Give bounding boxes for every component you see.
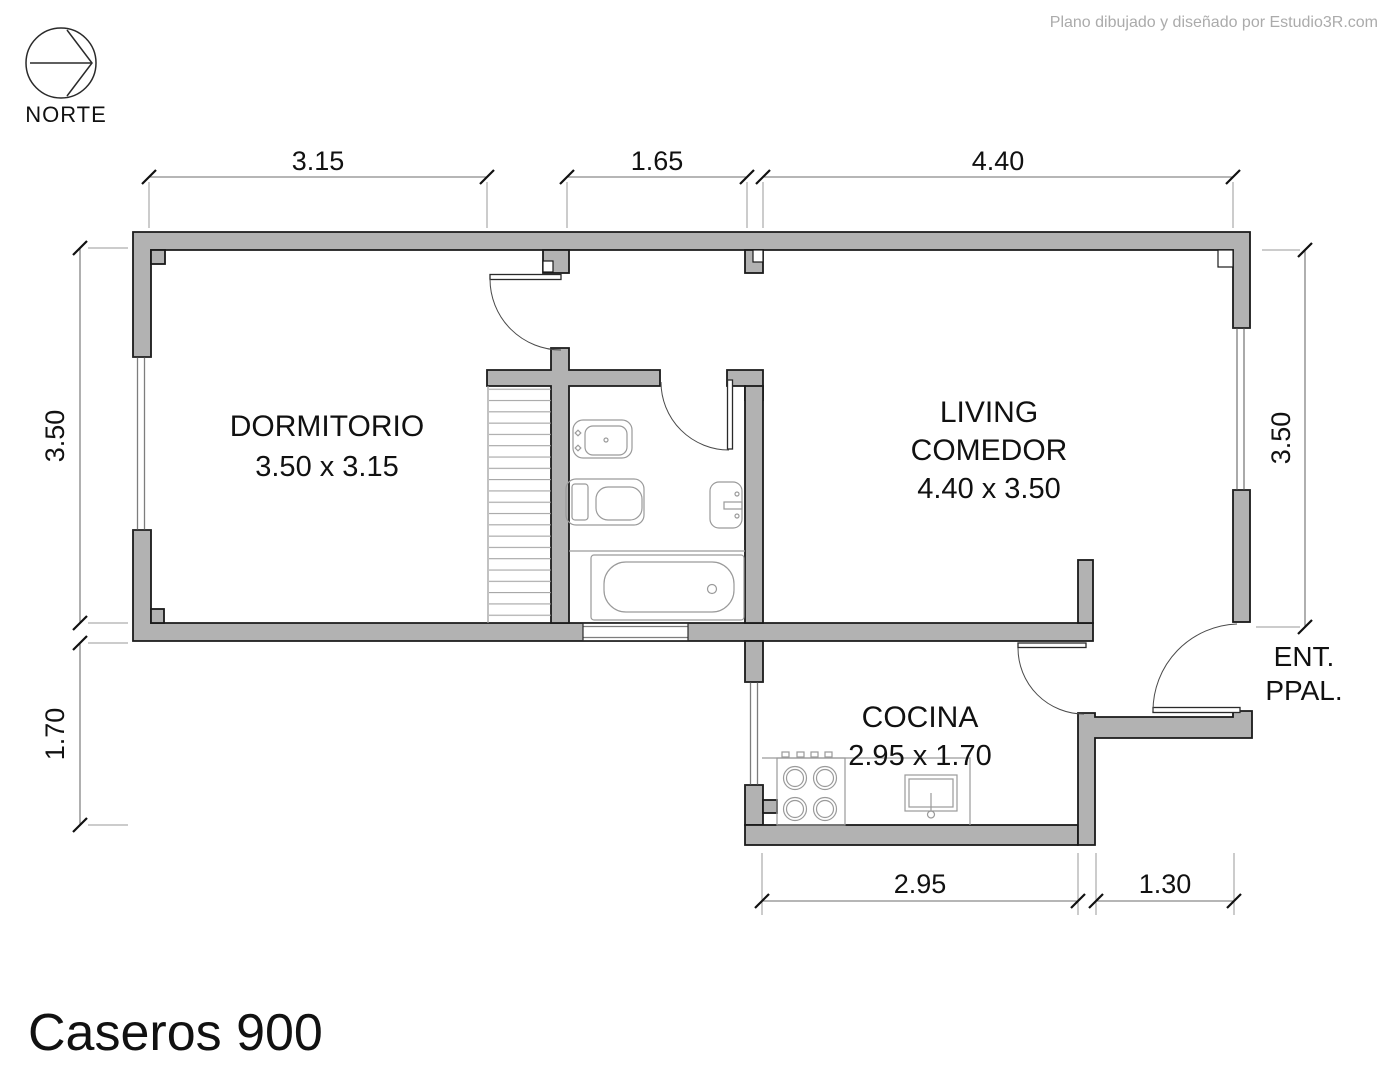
door-reveal-notch	[753, 250, 763, 262]
door-main-entrance	[1153, 624, 1240, 713]
dim-top-440: 4.40	[972, 146, 1025, 176]
dim-left-350: 3.50	[40, 410, 70, 463]
dimension-chain-bottom: 2.95 1.30	[755, 853, 1241, 915]
dim-right-350: 3.50	[1266, 412, 1296, 465]
room-labels: DORMITORIO 3.50 x 3.15 LIVING COMEDOR 4.…	[230, 396, 1343, 772]
dimension-chain-top: 3.15 1.65 4.40	[142, 146, 1240, 228]
bathroom-sink	[710, 482, 742, 528]
dormitorio-label: DORMITORIO	[230, 410, 424, 443]
bathtub	[591, 555, 744, 620]
corner-reveal-notch	[1218, 250, 1233, 267]
window-right	[1233, 328, 1250, 490]
window-kitchen	[745, 682, 763, 785]
dimension-chain-left: 3.50 1.70	[40, 241, 128, 832]
plan-title: Caseros 900	[28, 1004, 323, 1062]
toilet	[566, 479, 644, 525]
dim-bottom-295: 2.95	[894, 869, 947, 899]
window-left	[133, 357, 151, 530]
dormitorio-size: 3.50 x 3.15	[255, 451, 399, 483]
bidet	[573, 420, 632, 458]
living-size: 4.40 x 3.50	[917, 473, 1061, 505]
dim-bottom-130: 1.30	[1139, 869, 1192, 899]
floor-plan-drawing: Plano dibujado y diseñado por Estudio3R.…	[0, 0, 1387, 1080]
walls	[133, 232, 1252, 845]
window-bathroom	[583, 623, 688, 641]
closet-hatch	[488, 386, 551, 623]
entrance-label-line1: ENT.	[1274, 641, 1335, 672]
dim-left-170: 1.70	[40, 708, 70, 761]
cocina-label: COCINA	[862, 701, 979, 734]
entrance-label-line2: PPAL.	[1265, 675, 1342, 706]
north-label: NORTE	[25, 102, 107, 127]
dimension-chain-right: 3.50	[1256, 243, 1312, 634]
north-arrow-icon	[26, 28, 96, 98]
kitchen-sink	[905, 775, 957, 818]
stove	[777, 752, 845, 825]
dim-top-165: 1.65	[631, 146, 684, 176]
credit-text: Plano dibujado y diseñado por Estudio3R.…	[1050, 14, 1378, 31]
door-kitchen	[1018, 643, 1086, 714]
dim-top-315: 3.15	[292, 146, 345, 176]
door-reveal-notch	[543, 261, 553, 272]
cocina-size: 2.95 x 1.70	[848, 740, 992, 772]
floor-plan-page: Plano dibujado y diseñado por Estudio3R.…	[0, 0, 1387, 1080]
bathroom-fixtures	[566, 420, 745, 620]
door-dormitorio	[490, 275, 561, 351]
living-label-line1: LIVING	[940, 396, 1038, 429]
door-bathroom	[661, 380, 733, 450]
living-label-line2: COMEDOR	[911, 434, 1068, 467]
